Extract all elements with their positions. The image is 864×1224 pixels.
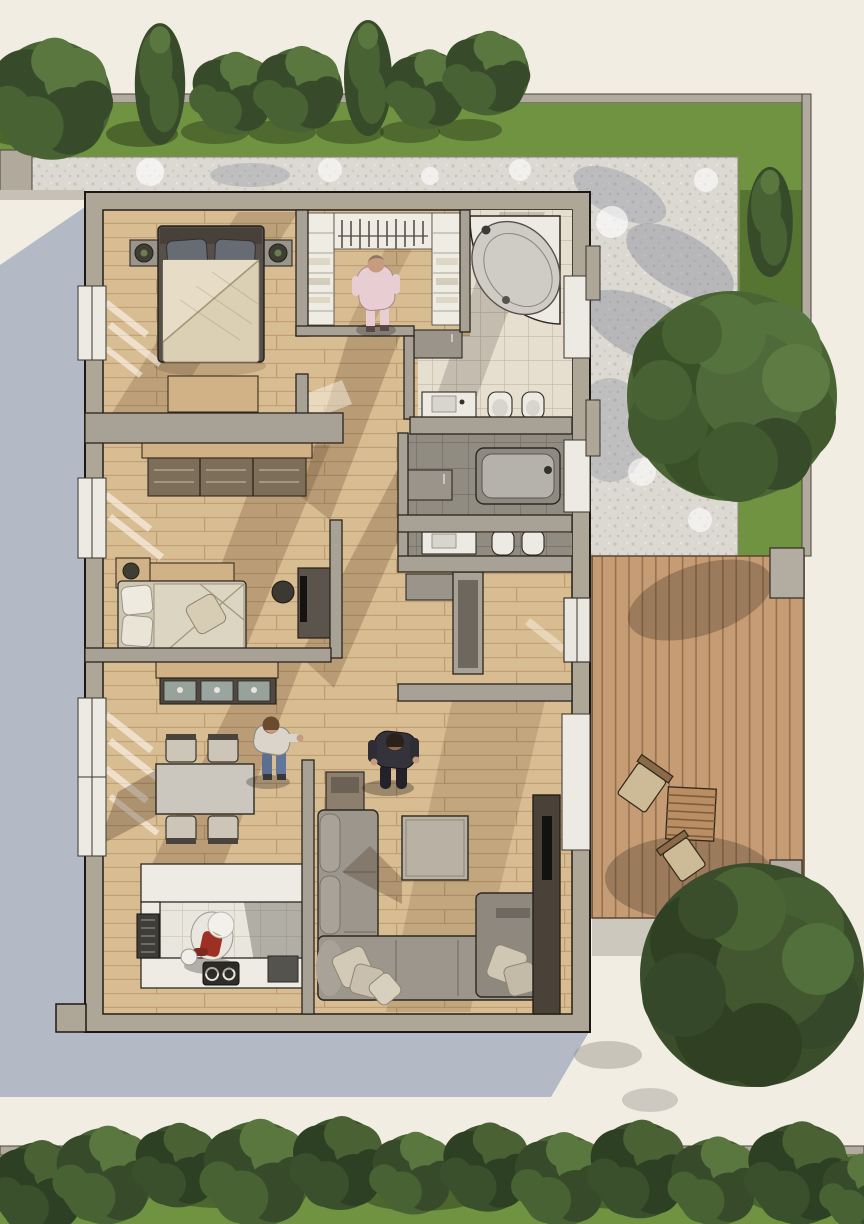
leaf-shadow — [622, 1088, 678, 1112]
dining-table — [156, 764, 254, 814]
floor-plan-render — [0, 0, 864, 1224]
storage-bench-baskets — [148, 458, 306, 496]
tv-screen — [542, 816, 552, 880]
faucet — [460, 400, 465, 405]
tree-top-5-columnar — [344, 20, 392, 136]
gravel-shadow — [210, 163, 290, 187]
towel-stack — [308, 258, 330, 265]
gravel-highlight — [509, 159, 531, 181]
wall-ledge-left — [0, 190, 85, 200]
deck-pillar — [770, 548, 804, 598]
kids-lamp — [123, 563, 139, 579]
leaf-shadow — [574, 1041, 642, 1069]
coffee-table — [402, 816, 468, 880]
side-table-top — [331, 777, 359, 793]
large-tree-bottom-right — [640, 863, 864, 1087]
lamp-glow — [275, 250, 282, 257]
toilet — [492, 530, 514, 555]
basin — [432, 396, 456, 412]
tub-basin — [482, 454, 554, 498]
gravel-highlight — [596, 206, 628, 238]
hall-dresser — [410, 330, 462, 358]
shelf-column-right — [432, 213, 462, 325]
toilet-seat — [492, 399, 508, 417]
entry-cabinet — [406, 574, 454, 600]
tv-screen — [300, 576, 307, 622]
tub-faucet — [544, 466, 552, 474]
partition-inner — [458, 580, 478, 668]
towel-stack — [436, 258, 458, 265]
counter-appliance — [268, 956, 298, 982]
counter-top-run — [141, 864, 303, 902]
wall-stub-left — [0, 150, 32, 192]
corner-step — [56, 1004, 86, 1032]
tree-top-2-columnar — [135, 23, 185, 145]
house — [56, 192, 600, 1032]
gravel-highlight — [136, 158, 164, 186]
gravel-highlight — [694, 168, 718, 192]
gravel-highlight — [318, 158, 342, 182]
bidet — [522, 530, 544, 555]
gravel-highlight — [688, 508, 712, 532]
east-pilaster — [586, 246, 600, 300]
towel-stack — [308, 278, 330, 285]
tub-faucet — [482, 226, 491, 235]
bidet-basin — [526, 400, 540, 416]
lamp-glow — [141, 250, 148, 257]
bench — [168, 376, 258, 412]
double-bed — [158, 226, 264, 362]
window-west-bedroom — [78, 286, 106, 360]
window-west-dining — [78, 698, 106, 856]
towel-stack — [436, 278, 458, 285]
tree-top-1 — [0, 38, 113, 160]
tub-drain — [502, 296, 510, 304]
towel-stack — [308, 297, 330, 303]
hanging-rail-unit — [334, 213, 432, 249]
bath-cabinet — [404, 470, 452, 500]
columnar-tree-right — [747, 167, 793, 277]
large-tree-right — [627, 291, 837, 502]
gravel-highlight — [421, 167, 439, 185]
east-pilaster — [586, 400, 600, 456]
basin — [432, 534, 456, 548]
towel-stack — [436, 297, 458, 303]
desk-chair — [272, 581, 294, 603]
slatted-table — [666, 787, 717, 841]
window-east-living — [562, 714, 590, 850]
window-west-kids — [78, 478, 106, 558]
chaise-pillow — [496, 908, 530, 918]
